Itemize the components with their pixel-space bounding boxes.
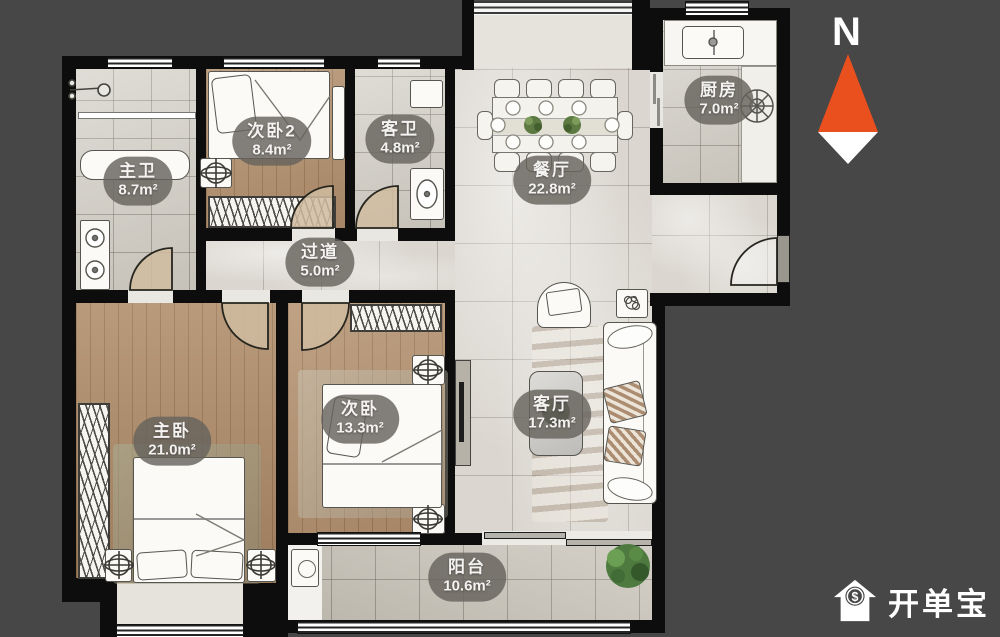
room-area: 5.0m²: [300, 262, 339, 279]
kitchen-slider-panel: [653, 74, 656, 104]
wall: [349, 290, 455, 303]
window: [108, 58, 172, 67]
dining-chair: [558, 79, 584, 99]
wall: [276, 533, 318, 545]
room-name: 阳台: [443, 558, 491, 578]
dining-chair: [477, 111, 493, 140]
armchair: [537, 282, 591, 328]
wall: [650, 293, 790, 306]
nightstand-bedroom-top: [412, 355, 445, 385]
room-name: 主卫: [118, 162, 157, 182]
room-name: 客卫: [380, 120, 419, 140]
room-name: 过道: [300, 243, 339, 263]
armchair-pillow: [545, 288, 582, 316]
table-runner: [493, 118, 617, 136]
floor-entry-vestibule: [474, 14, 632, 68]
room-area: 13.3m²: [336, 419, 384, 436]
plant-box: [616, 289, 648, 318]
nightstand-bedroom-bottom: [412, 504, 445, 534]
dollar-sign: $: [852, 590, 859, 604]
doorway-bedroom: [302, 290, 349, 303]
room-label-master-bedroom: 主卧 21.0m²: [133, 417, 211, 466]
kitchen-sink: [682, 26, 744, 59]
doorway-master-bath: [128, 290, 173, 303]
blanket-line: [323, 463, 441, 465]
guest-vanity: [410, 168, 444, 220]
room-name: 餐厅: [528, 161, 576, 181]
doorway-kitchen: [650, 72, 663, 128]
room-label-hallway: 过道 5.0m²: [285, 238, 354, 287]
wall: [420, 533, 482, 545]
room-area: 22.8m²: [528, 180, 576, 197]
room-label-balcony: 阳台 10.6m²: [428, 553, 506, 602]
room-area: 10.6m²: [443, 577, 491, 594]
room-area: 17.3m²: [528, 414, 576, 431]
watermark-text: 开单宝: [888, 579, 990, 624]
north-arrow-top: [818, 54, 878, 132]
room-label-bedroom: 次卧 13.3m²: [321, 395, 399, 444]
dining-chair: [617, 111, 633, 140]
window: [378, 58, 420, 67]
room-label-living: 客厅 17.3m²: [513, 390, 591, 439]
sofa-armrest-top: [605, 321, 655, 352]
floor-entry-hall: [652, 195, 777, 293]
floor-plan: 主卫 8.7m² 次卧2 8.4m² 客卫 4.8m² 餐厅 22.8m² 厨房…: [0, 0, 1000, 637]
room-name: 次卧: [336, 400, 384, 420]
room-area: 21.0m²: [148, 441, 196, 458]
wall: [650, 8, 663, 72]
room-label-master-bath: 主卫 8.7m²: [103, 157, 172, 206]
room-label-guest-bath: 客卫 4.8m²: [365, 115, 434, 164]
wall: [445, 68, 455, 241]
sink-divider: [713, 30, 715, 55]
washer-door: [298, 560, 316, 578]
wall: [345, 68, 355, 228]
blanket-line: [134, 518, 244, 520]
dining-chair: [526, 79, 552, 99]
entry-door-mat: [474, 1, 632, 15]
wall: [777, 8, 790, 235]
kitchen-slider-panel: [657, 98, 660, 126]
room-area: 8.4m²: [247, 141, 296, 158]
nightstand-bedroom2: [332, 86, 345, 160]
floor-master-baywindow: [117, 583, 243, 625]
room-name: 主卧: [148, 422, 196, 442]
pillow-master-left: [136, 549, 188, 580]
room-area: 8.7m²: [118, 181, 157, 198]
north-arrow-icon: [816, 54, 880, 166]
wall: [100, 578, 117, 637]
window: [224, 58, 324, 67]
wall: [462, 0, 474, 70]
sliding-door-panel: [484, 532, 566, 539]
dining-chair: [590, 152, 616, 172]
doorway-guest-bath: [357, 228, 398, 241]
entry-door-leaf: [777, 235, 790, 283]
sofa-pillow-2: [603, 425, 646, 467]
nightstand-master-left: [105, 549, 132, 582]
wall: [196, 228, 292, 241]
room-label-bedroom2: 次卧2 8.4m²: [232, 117, 311, 166]
wall: [62, 290, 128, 303]
dining-chair: [590, 79, 616, 99]
wardrobe-bedroom: [350, 304, 442, 332]
window-master-bay: [117, 625, 243, 637]
sliding-door-panel: [566, 539, 652, 546]
room-name: 次卧2: [247, 122, 296, 142]
window-kitchen: [686, 2, 748, 15]
shower-partition: [78, 112, 196, 119]
toilet: [410, 80, 443, 108]
washing-machine: [291, 549, 319, 587]
house-dollar-icon: $: [832, 578, 878, 624]
room-label-dining: 餐厅 22.8m²: [513, 156, 591, 205]
room-area: 4.8m²: [380, 139, 419, 156]
wardrobe-bedroom2: [208, 196, 336, 228]
north-arrow-bottom: [818, 132, 878, 164]
floor-lamp-pad: [200, 158, 232, 188]
window-balcony: [298, 622, 630, 633]
bathroom-vanity: [80, 220, 110, 290]
wall: [650, 183, 777, 195]
watermark: $ 开单宝: [832, 578, 990, 624]
room-name: 客厅: [528, 395, 576, 415]
wall: [62, 56, 76, 602]
room-name: 厨房: [699, 81, 738, 101]
tv: [459, 382, 464, 442]
sofa-armrest-bottom: [605, 473, 655, 504]
wall: [62, 578, 104, 602]
room-label-kitchen: 厨房 7.0m²: [684, 76, 753, 125]
doorway-master-bedroom: [222, 290, 270, 303]
wall: [173, 290, 222, 303]
dining-table: [492, 97, 618, 153]
north-label: N: [832, 10, 861, 55]
nightstand-master-right: [247, 549, 276, 582]
wall: [270, 290, 302, 303]
dining-chair: [494, 79, 520, 99]
room-area: 7.0m²: [699, 100, 738, 117]
wall: [398, 228, 455, 241]
window-bedroom-balcony: [318, 533, 420, 545]
pillow-master-right: [190, 550, 243, 581]
